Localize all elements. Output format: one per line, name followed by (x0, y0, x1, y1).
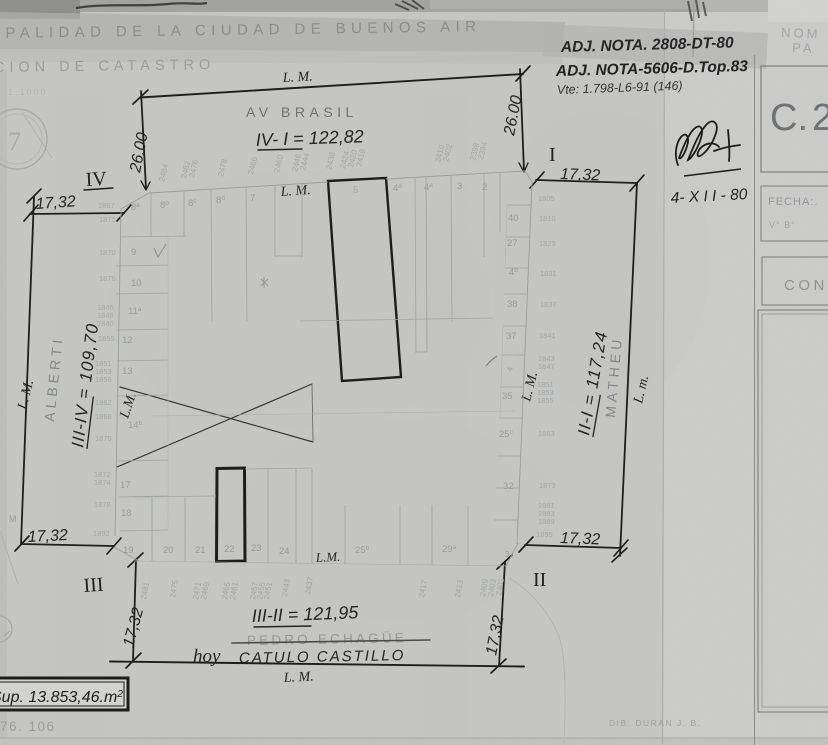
svg-text:1868: 1868 (95, 412, 112, 421)
svg-text:5: 5 (353, 185, 358, 196)
svg-text:1855: 1855 (537, 396, 554, 405)
svg-text:1:1000: 1:1000 (8, 87, 48, 97)
svg-text:NOM: NOM (781, 25, 821, 41)
svg-text:L.M.: L.M. (314, 549, 340, 565)
svg-text:1810: 1810 (539, 214, 556, 223)
svg-text:23: 23 (251, 543, 262, 554)
svg-text:AV BRASIL: AV BRASIL (246, 104, 358, 120)
svg-text:III: III (83, 574, 104, 597)
svg-text:1876: 1876 (99, 274, 116, 283)
svg-text:2: 2 (812, 97, 828, 139)
svg-text:1831: 1831 (540, 269, 557, 278)
svg-text:35: 35 (502, 391, 513, 402)
svg-text:2: 2 (482, 182, 487, 193)
svg-text:1862: 1862 (95, 398, 112, 407)
svg-text:22: 22 (224, 544, 235, 555)
svg-text:1856: 1856 (95, 375, 112, 384)
svg-text:PA: PA (792, 40, 815, 56)
svg-text:1863: 1863 (538, 429, 555, 438)
svg-text:1870: 1870 (95, 434, 112, 443)
svg-text:17,32: 17,32 (560, 530, 601, 548)
svg-text:1874: 1874 (94, 478, 111, 487)
svg-text:3: 3 (457, 181, 462, 192)
svg-text:3: 3 (505, 550, 510, 559)
svg-text:1805: 1805 (538, 194, 555, 203)
svg-text:V° B°: V° B° (769, 220, 796, 230)
svg-text:L. M.: L. M. (282, 669, 314, 686)
svg-text:20: 20 (163, 545, 174, 556)
svg-text:III-II = 121,95: III-II = 121,95 (251, 602, 359, 626)
svg-text:II: II (533, 569, 546, 591)
svg-text:1895: 1895 (536, 530, 553, 539)
svg-text:17,32: 17,32 (27, 527, 68, 546)
svg-text:L. M.: L. M. (281, 69, 313, 86)
svg-text:1870: 1870 (99, 248, 116, 257)
svg-text:1873: 1873 (539, 481, 556, 490)
svg-text:1889: 1889 (538, 517, 555, 526)
svg-text:L. M.: L. M. (279, 183, 311, 200)
svg-text:10: 10 (131, 278, 142, 289)
svg-text:1847: 1847 (538, 362, 555, 371)
svg-text:1837: 1837 (540, 300, 557, 309)
svg-text:1892: 1892 (93, 529, 110, 538)
svg-text:IV- I = 122,82: IV- I = 122,82 (255, 126, 364, 150)
svg-text:12: 12 (122, 335, 133, 346)
svg-text:PEDRO ECHAGÜE: PEDRO ECHAGÜE (247, 630, 407, 648)
svg-text:13: 13 (122, 366, 133, 377)
svg-text:DIB: DURAN J. B.: DIB: DURAN J. B. (609, 718, 701, 728)
svg-text:19: 19 (123, 545, 134, 556)
svg-text:Sup. 13.853,46.m2: Sup. 13.853,46.m2 (0, 689, 123, 706)
svg-text:CION DE CATASTRO: CION DE CATASTRO (0, 57, 215, 76)
svg-text:hoy: hoy (193, 646, 221, 667)
svg-text:M: M (9, 514, 17, 524)
svg-text:18: 18 (121, 508, 132, 519)
svg-text:CATULO CASTILLO: CATULO CASTILLO (239, 647, 406, 667)
svg-text:1855: 1855 (98, 334, 115, 343)
svg-text:1872: 1872 (99, 215, 116, 224)
svg-text:IV: IV (85, 168, 108, 191)
svg-text:38: 38 (507, 299, 518, 310)
svg-text:76. 106: 76. 106 (0, 719, 56, 734)
svg-text:7: 7 (8, 127, 21, 156)
svg-text:21: 21 (195, 545, 206, 556)
svg-text:CON: CON (784, 277, 828, 294)
svg-text:1878: 1878 (94, 500, 111, 509)
svg-text:32: 32 (503, 481, 514, 492)
svg-text:27: 27 (507, 238, 518, 249)
svg-text:1840: 1840 (97, 319, 114, 328)
svg-text:40: 40 (508, 213, 519, 224)
svg-text:C.: C. (770, 97, 808, 139)
svg-text:17,32: 17,32 (560, 166, 601, 184)
svg-text:24: 24 (279, 546, 290, 557)
svg-text:1867: 1867 (98, 201, 115, 210)
svg-text:37: 37 (506, 331, 517, 342)
svg-text:I: I (549, 144, 556, 166)
svg-text:1841: 1841 (539, 331, 556, 340)
svg-text:1823: 1823 (539, 239, 556, 248)
svg-text:17: 17 (120, 480, 131, 491)
svg-text:7: 7 (250, 193, 255, 204)
svg-text:9: 9 (131, 247, 136, 258)
svg-text:17,32: 17,32 (35, 193, 76, 213)
svg-text:FECHA:.: FECHA:. (768, 196, 818, 208)
